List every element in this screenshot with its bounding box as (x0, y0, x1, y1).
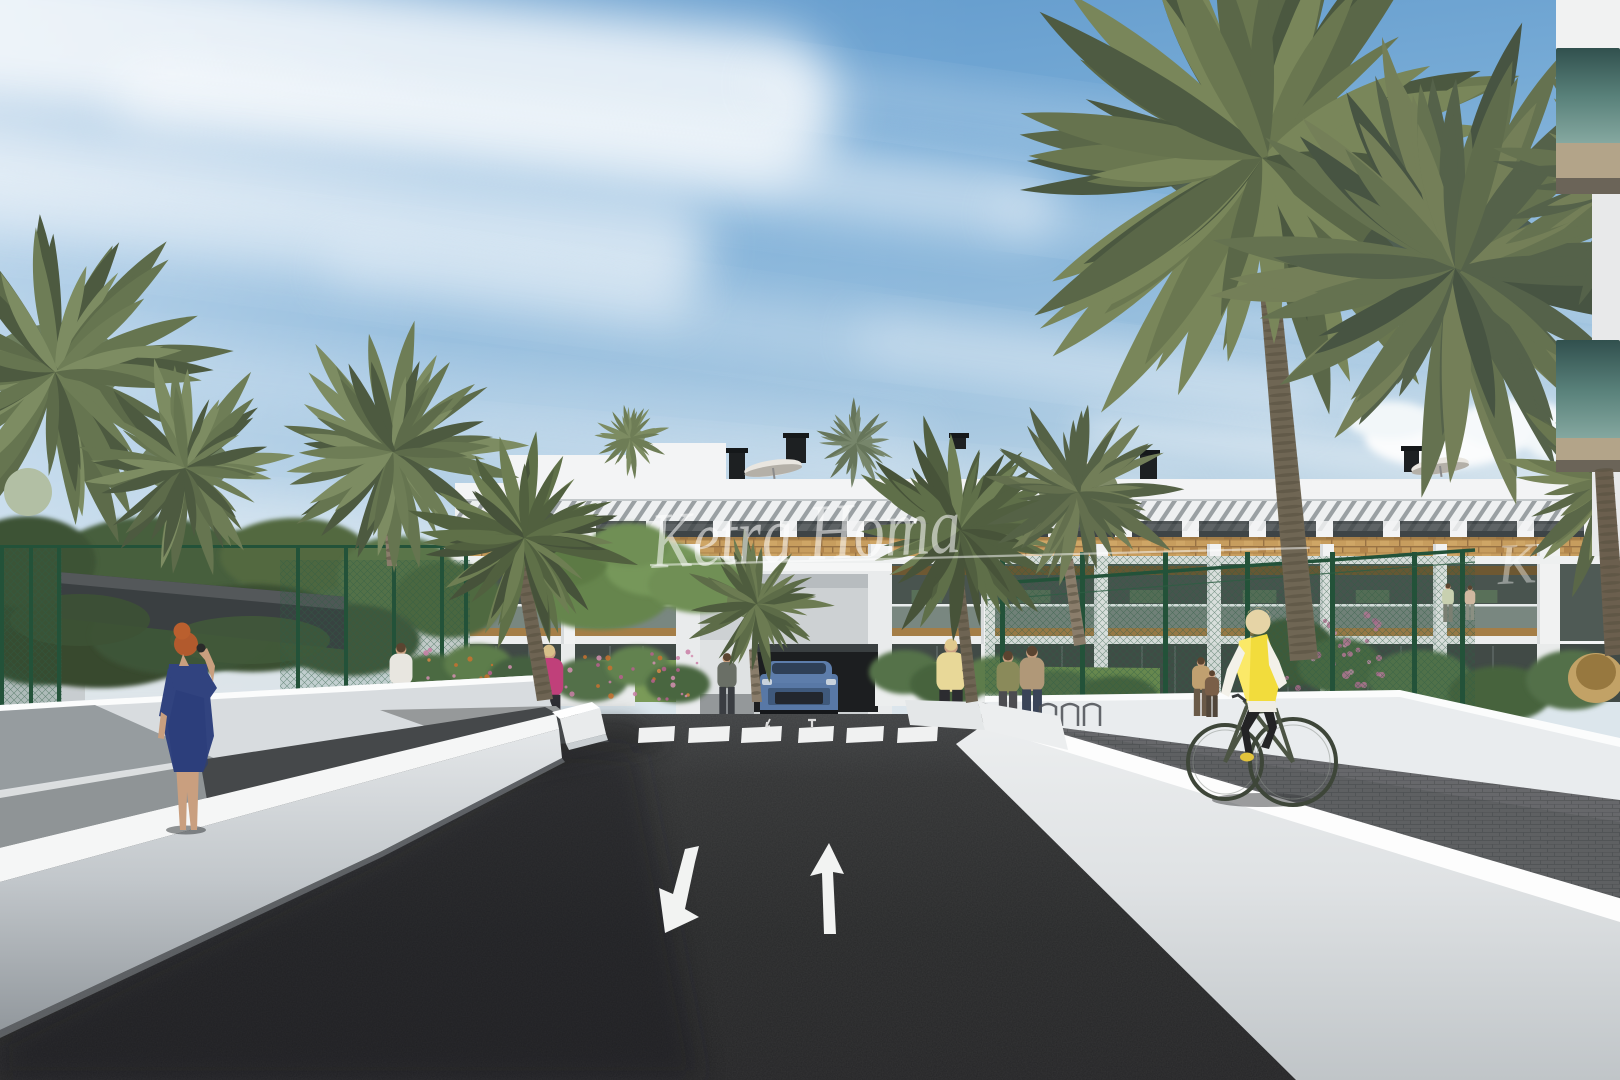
svg-text:K: K (1494, 530, 1540, 597)
svg-text:Ketra Homa: Ketra Homa (647, 480, 962, 585)
